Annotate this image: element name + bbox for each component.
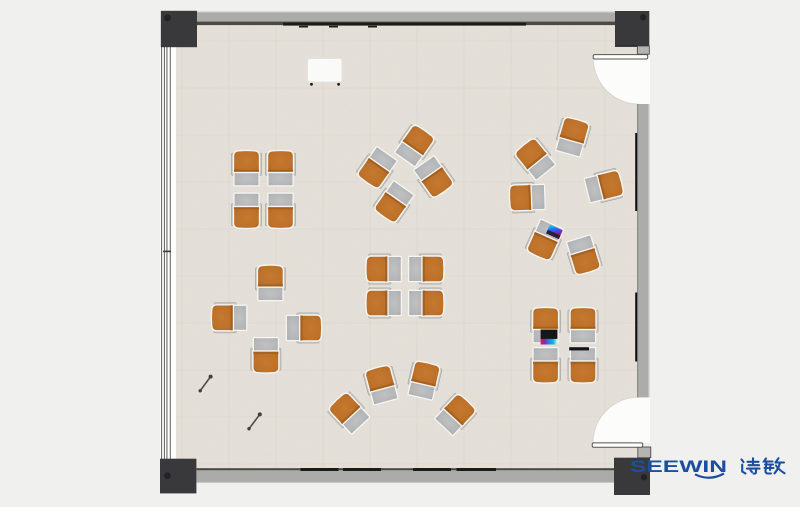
svg-text:SEEWIN: SEEWIN [630, 458, 727, 476]
